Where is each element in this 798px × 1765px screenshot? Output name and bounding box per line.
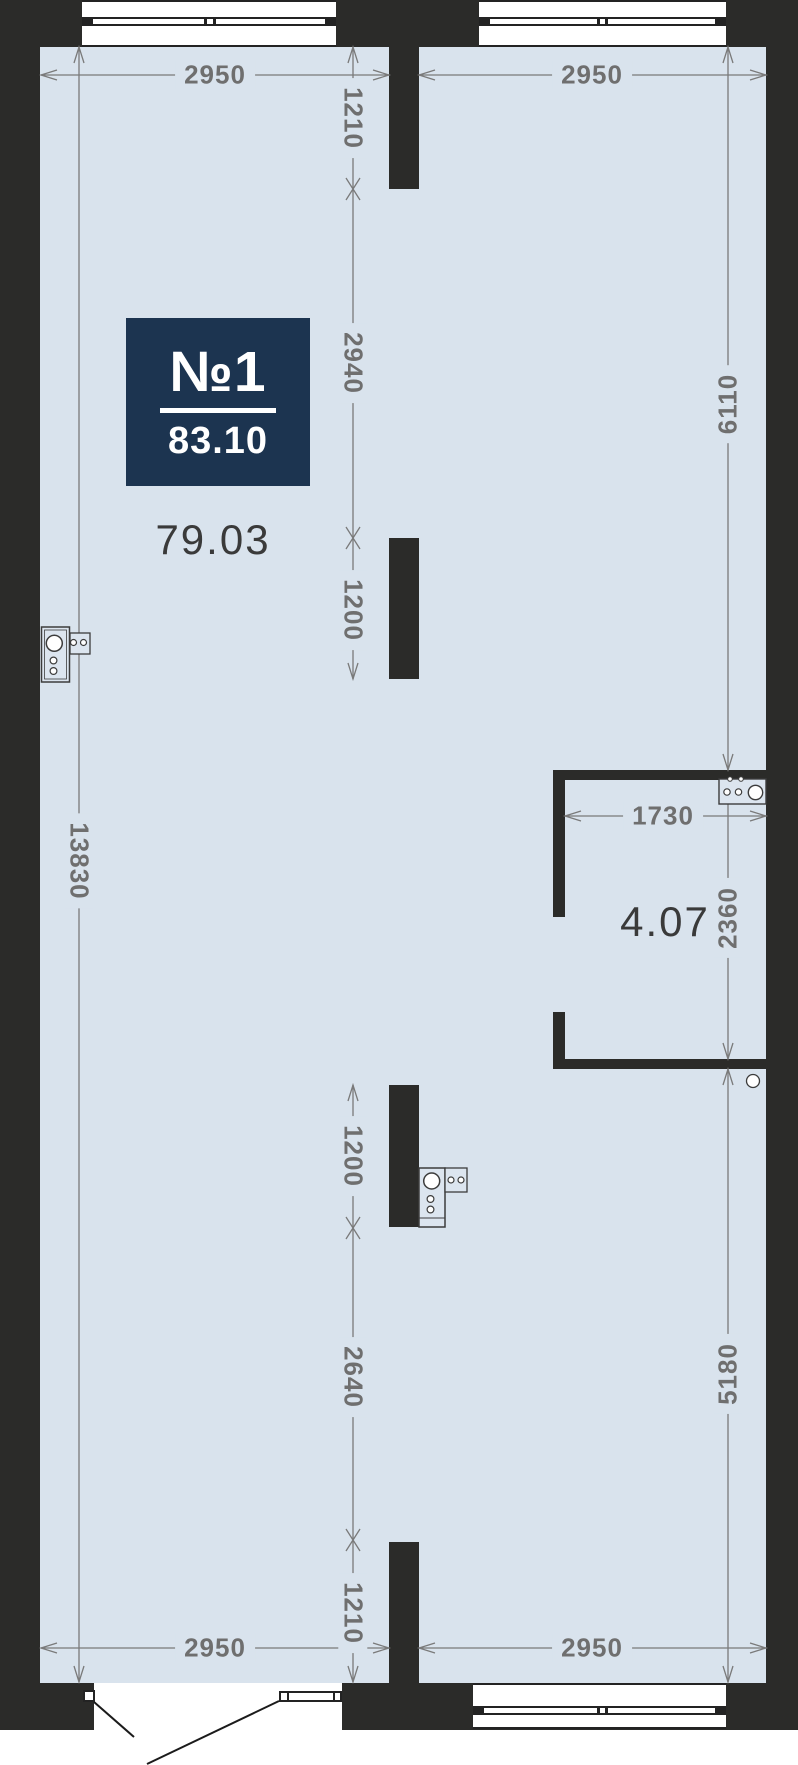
sink-icon bbox=[719, 777, 766, 804]
dim-1200-lower: 1200 bbox=[339, 1116, 368, 1196]
dim-13830-total: 13830 bbox=[65, 813, 94, 908]
badge-divider bbox=[160, 408, 276, 413]
dim-1200-upper: 1200 bbox=[339, 570, 368, 650]
dim-6110: 6110 bbox=[714, 365, 743, 443]
unit-badge: №1 83.10 bbox=[126, 318, 310, 486]
dimension-lines bbox=[41, 47, 766, 1682]
bathroom-area-label: 4.07 bbox=[620, 898, 710, 946]
dim-2360: 2360 bbox=[714, 878, 743, 958]
sprinkler-icon bbox=[747, 1075, 760, 1088]
unit-total-area: 83.10 bbox=[168, 422, 268, 460]
stove-icon bbox=[419, 1168, 467, 1227]
dim-top-left: 2950 bbox=[175, 61, 255, 90]
room-area-label: 79.03 bbox=[155, 516, 270, 564]
stove-icon bbox=[42, 627, 91, 682]
dim-2940: 2940 bbox=[339, 323, 368, 403]
door-swing-lines bbox=[94, 1701, 279, 1764]
dim-bottom-left: 2950 bbox=[175, 1634, 255, 1663]
plan-linework bbox=[0, 0, 798, 1765]
dim-bottom-right: 2950 bbox=[552, 1634, 632, 1663]
dim-bathroom-width: 1730 bbox=[623, 802, 703, 831]
floor-plan: №1 83.10 79.03 4.07 2950 2950 2950 2950 … bbox=[0, 0, 798, 1765]
dim-top-right: 2950 bbox=[552, 61, 632, 90]
dim-1210-top: 1210 bbox=[339, 78, 368, 158]
dim-5180: 5180 bbox=[714, 1334, 743, 1414]
unit-number: №1 bbox=[169, 344, 266, 401]
dim-1210-bottom: 1210 bbox=[339, 1573, 368, 1653]
dim-2640: 2640 bbox=[339, 1337, 368, 1417]
